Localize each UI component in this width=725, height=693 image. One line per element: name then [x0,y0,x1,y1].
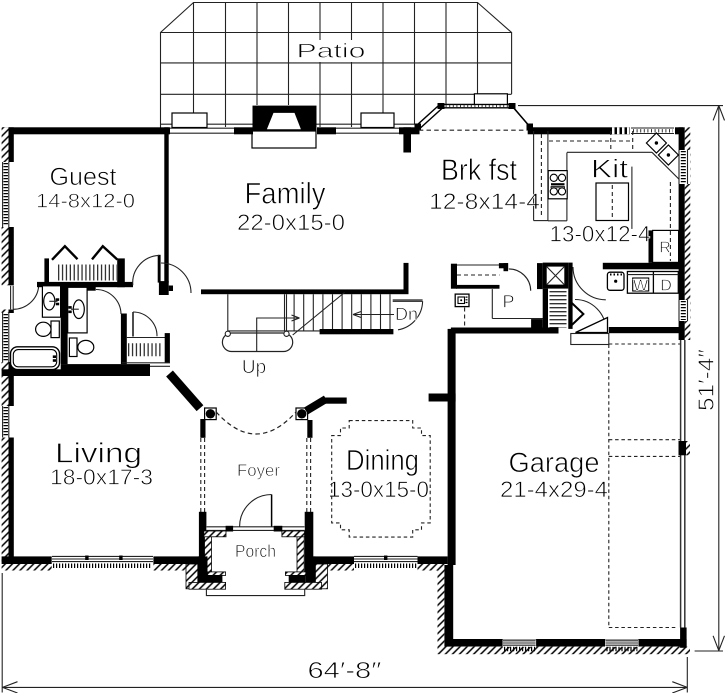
svg-text:13-0x15-0: 13-0x15-0 [328,477,429,502]
svg-text:Guest: Guest [50,163,117,191]
svg-text:Porch: Porch [235,541,276,561]
svg-text:22-0x15-0: 22-0x15-0 [237,210,345,235]
svg-text:13-0x12-4: 13-0x12-4 [550,222,651,247]
svg-text:D: D [660,278,672,295]
svg-text:12-8x14-4: 12-8x14-4 [429,189,540,214]
svg-text:Garage: Garage [509,447,600,478]
svg-text:14-8x12-0: 14-8x12-0 [36,191,135,213]
svg-text:64′-8″: 64′-8″ [308,657,382,683]
svg-text:Brk fst: Brk fst [441,154,518,187]
svg-text:18-0x17-3: 18-0x17-3 [50,465,153,490]
svg-text:Dining: Dining [346,445,419,477]
svg-text:W: W [633,278,649,295]
svg-text:51′-4″: 51′-4″ [694,349,719,411]
svg-text:Up: Up [242,357,266,378]
svg-text:P: P [502,292,514,312]
svg-text:21-4x29-4: 21-4x29-4 [500,477,608,502]
svg-text:Patio: Patio [297,41,366,63]
svg-text:Kit: Kit [591,154,629,184]
svg-text:R: R [659,240,671,257]
svg-text:Dn: Dn [395,304,418,324]
svg-text:Foyer: Foyer [237,461,280,480]
svg-text:Family: Family [245,178,326,211]
